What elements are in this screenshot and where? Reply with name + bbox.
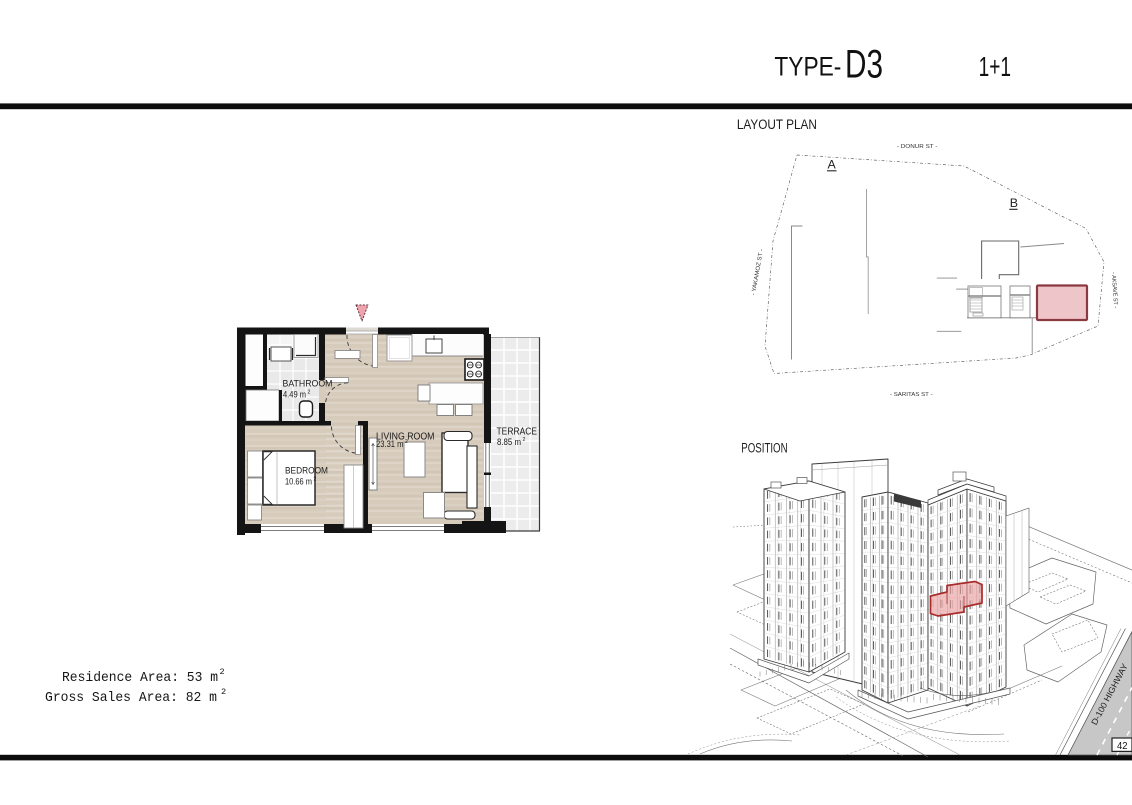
svg-text:- SARITAS ST -: - SARITAS ST - bbox=[890, 392, 933, 398]
svg-text:LAYOUT PLAN: LAYOUT PLAN bbox=[737, 117, 817, 132]
svg-text:10.66 m: 10.66 m bbox=[285, 477, 312, 487]
svg-text:POSITION: POSITION bbox=[741, 440, 787, 455]
svg-text:23.31 m: 23.31 m bbox=[376, 439, 404, 449]
svg-text:TERRACE: TERRACE bbox=[497, 427, 538, 438]
svg-text:A: A bbox=[828, 158, 837, 172]
svg-text:2: 2 bbox=[308, 390, 311, 396]
svg-text:BEDROOM: BEDROOM bbox=[285, 465, 328, 476]
svg-text:42: 42 bbox=[1117, 741, 1128, 752]
svg-text:8.85 m: 8.85 m bbox=[497, 437, 521, 447]
svg-text:2: 2 bbox=[523, 437, 526, 443]
svg-text:TYPE-: TYPE- bbox=[774, 51, 841, 81]
svg-text:1+1: 1+1 bbox=[979, 51, 1011, 82]
svg-text:2: 2 bbox=[220, 667, 225, 677]
svg-text:2: 2 bbox=[314, 477, 317, 483]
svg-text:2: 2 bbox=[405, 439, 408, 445]
svg-text:BATHROOM: BATHROOM bbox=[283, 378, 333, 389]
svg-text:Residence Area: 53 m: Residence Area: 53 m bbox=[62, 671, 218, 686]
svg-text:4.49 m: 4.49 m bbox=[283, 390, 306, 400]
svg-text:B: B bbox=[1010, 196, 1018, 210]
svg-text:- DONUR ST -: - DONUR ST - bbox=[897, 144, 938, 150]
svg-text:2: 2 bbox=[221, 687, 226, 697]
svg-text:Gross Sales Area: 82 m: Gross Sales Area: 82 m bbox=[45, 691, 217, 706]
svg-text:D3: D3 bbox=[845, 42, 883, 86]
